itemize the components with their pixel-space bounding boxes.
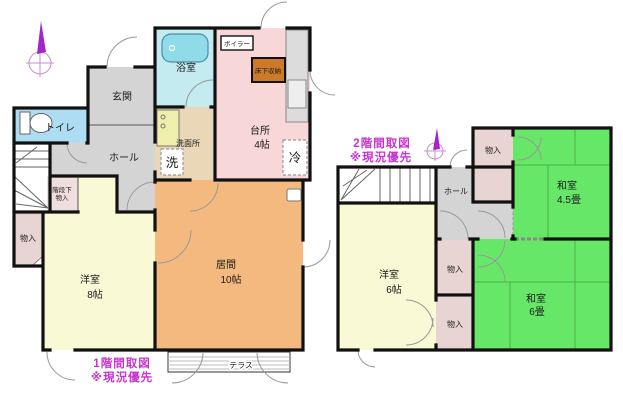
label-kitchen: 台所 [250, 124, 270, 137]
label-under-stairs-2: 物入 [56, 193, 70, 202]
caption-2f-line2: ※現況優先 [350, 150, 412, 164]
label-washitsu6-size: 6畳 [529, 306, 545, 318]
floor-plan-page: 浴室 ボイラー 床下収納 台所 4帖 冷 玄関 トイレ ホール 洗面所 洗 階段… [0, 0, 623, 401]
label-storage-left: 物入 [20, 233, 36, 243]
label-closet-mid: 物入 [447, 264, 463, 274]
room-under-stairs-closet [47, 176, 78, 212]
ac-unit-icon [287, 189, 301, 201]
label-fridge: 冷 [289, 151, 302, 165]
caption-2f-line1: 2階間取図 [353, 136, 410, 150]
label-washitsu45: 和室 [557, 179, 577, 192]
floor-plan-drawing: 浴室 ボイラー 床下収納 台所 4帖 冷 玄関 トイレ ホール 洗面所 洗 階段… [0, 0, 623, 401]
room-hall-2f-east [473, 202, 513, 240]
label-underfloor: 床下収納 [255, 66, 281, 75]
label-hall-1f: ホール [109, 152, 139, 164]
label-washitsu6: 和室 [526, 292, 546, 305]
label-boiler: ボイラー [224, 40, 250, 48]
bathtub-icon [162, 34, 208, 62]
room-hall [88, 125, 155, 176]
caption-1f-line1: 1階間取図 [93, 356, 150, 370]
compass-2f-icon [424, 128, 446, 161]
label-washitsu45-size: 4.5畳 [557, 194, 581, 206]
room-closet-second [473, 167, 513, 202]
room-hall-2f [436, 167, 473, 240]
stairwell-1f [14, 143, 50, 212]
stairwell-2f [338, 167, 436, 203]
label-toilet: トイレ [45, 123, 75, 134]
label-hall-2f: ホール [444, 187, 468, 196]
floor2-plan: 2階間取図 ※現況優先 ホール 物入 和室 4.5畳 洋室 6帖 物入 物入 和… [338, 128, 611, 367]
label-western8-size: 8帖 [87, 288, 103, 301]
room-hall-west [50, 142, 88, 176]
kitchen-counter [286, 30, 308, 122]
label-living-size: 10帖 [220, 273, 241, 286]
room-hall-ext [117, 176, 155, 212]
caption-1f-line2: ※現況優先 [91, 370, 153, 384]
label-bathroom: 浴室 [176, 61, 196, 74]
floor1-plan: 浴室 ボイラー 床下収納 台所 4帖 冷 玄関 トイレ ホール 洗面所 洗 階段… [14, 2, 335, 384]
label-closet-top: 物入 [485, 145, 501, 155]
label-western6: 洋室 [379, 268, 399, 281]
label-washer: 洗 [166, 156, 179, 170]
label-kitchen-size: 4帖 [254, 138, 270, 151]
label-western6-size: 6帖 [386, 283, 402, 296]
label-closet-bottom: 物入 [447, 319, 463, 329]
label-terrace: テラス [229, 361, 253, 370]
label-washroom: 洗面所 [176, 138, 200, 148]
label-western8: 洋室 [80, 273, 100, 286]
label-entrance: 玄関 [112, 90, 132, 103]
label-living: 居間 [216, 259, 236, 271]
label-under-stairs-1: 階段下 [52, 185, 72, 194]
compass-1f-icon [26, 21, 54, 77]
